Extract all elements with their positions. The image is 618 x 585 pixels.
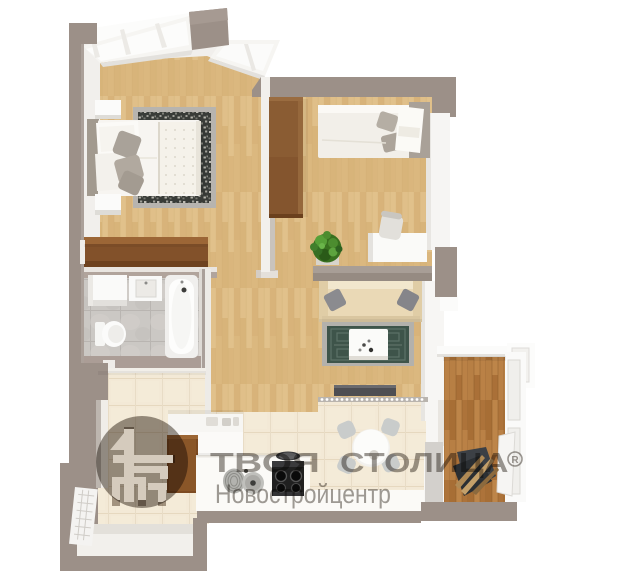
svg-text:R: R [511,455,519,466]
svg-text:СТОЛИЦА: СТОЛИЦА [340,447,509,479]
svg-text:ТВОЯ: ТВОЯ [210,447,320,478]
svg-text:Новостройцентр: Новостройцентр [215,479,391,509]
